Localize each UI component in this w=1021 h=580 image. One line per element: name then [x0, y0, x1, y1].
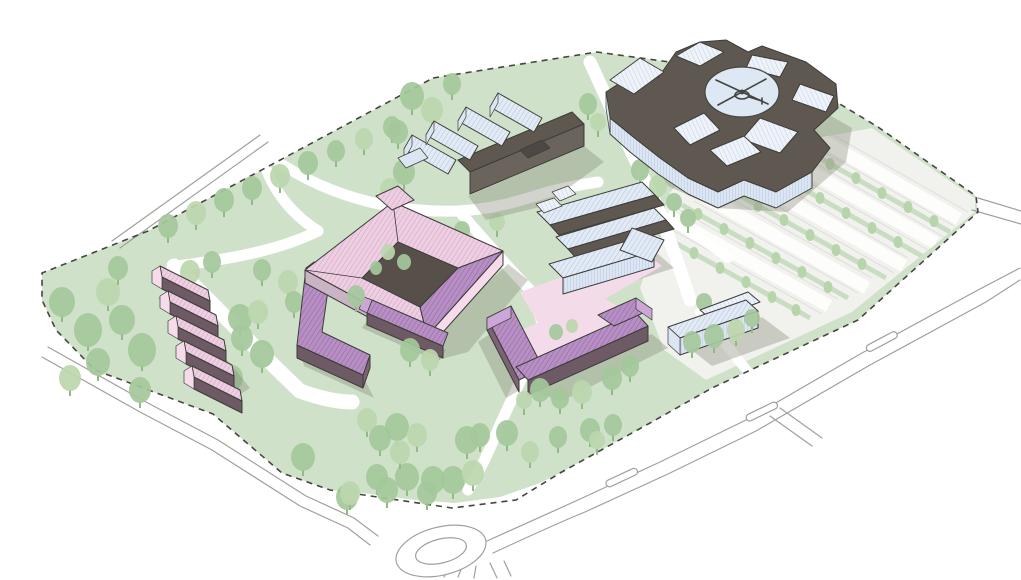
tree: [214, 188, 234, 212]
tree: [109, 305, 135, 335]
tree: [248, 300, 268, 324]
parking-tree: [742, 276, 751, 288]
parking-tree: [816, 192, 825, 204]
parking-tree: [806, 229, 815, 241]
masterplan-illustration: Campus site masterplan — axonometric aer…: [0, 0, 1021, 580]
tree: [291, 443, 315, 471]
tree: [347, 285, 365, 307]
tree: [516, 391, 532, 409]
tree: [680, 209, 696, 227]
tree: [549, 426, 567, 448]
parking-tree: [780, 214, 789, 226]
tree: [49, 287, 75, 317]
tree: [74, 313, 102, 347]
parking-tree: [720, 223, 729, 235]
tree: [443, 73, 461, 95]
tree: [421, 349, 439, 371]
tree: [370, 261, 382, 275]
tree: [355, 128, 373, 150]
tree: [727, 319, 745, 341]
tree: [417, 481, 437, 505]
tree: [521, 441, 539, 463]
tree: [602, 366, 622, 390]
tree: [421, 97, 443, 123]
tree: [128, 333, 156, 367]
parking-tree: [824, 281, 833, 293]
site-plan-canvas: Campus site masterplan — axonometric aer…: [0, 0, 1021, 580]
tree: [744, 309, 760, 327]
tree: [108, 256, 128, 280]
tree: [590, 113, 606, 131]
road-east-stub: [978, 198, 1021, 211]
tree: [470, 423, 490, 447]
parking-tree: [792, 304, 801, 316]
tree: [621, 355, 639, 377]
tree: [327, 140, 345, 162]
helipad: [705, 67, 779, 117]
tree: [390, 440, 410, 464]
parking-tree: [746, 237, 755, 249]
parking-tree: [798, 266, 807, 278]
tree: [400, 338, 420, 362]
tree: [566, 319, 578, 333]
parking-tree: [690, 247, 699, 259]
tree: [340, 481, 360, 505]
tree: [388, 120, 408, 144]
parking-tree: [878, 187, 887, 199]
tree: [397, 254, 411, 270]
tree: [231, 325, 253, 351]
tree: [530, 378, 550, 402]
tree: [551, 387, 569, 409]
tree: [96, 278, 120, 306]
roundabout: [391, 517, 492, 580]
tree: [683, 331, 701, 353]
tree: [59, 365, 81, 391]
tree: [441, 466, 465, 494]
parking-tree: [930, 215, 939, 227]
parking-tree: [832, 244, 841, 256]
tree: [242, 176, 262, 200]
parking-tree: [772, 252, 781, 264]
tree: [704, 324, 724, 348]
parking-tree: [858, 258, 867, 270]
parking-tree: [768, 291, 777, 303]
tree: [579, 93, 597, 115]
road-junction-spur: [770, 416, 812, 446]
tree: [604, 414, 622, 436]
tree: [666, 193, 682, 211]
parking-tree: [894, 236, 903, 248]
tree: [589, 431, 605, 449]
parking-tree: [904, 201, 913, 213]
tree: [407, 423, 427, 447]
parking-tree: [868, 222, 877, 234]
tree: [385, 413, 409, 441]
tree: [395, 463, 419, 491]
tree: [462, 460, 484, 486]
tree: [549, 324, 563, 340]
tree: [572, 380, 592, 404]
parking-tree: [716, 262, 725, 274]
tree: [250, 340, 274, 368]
tree: [496, 420, 518, 446]
tree: [376, 477, 398, 503]
tree: [203, 251, 221, 273]
tree: [400, 82, 424, 110]
tree: [129, 377, 151, 403]
tree: [278, 270, 298, 294]
tree: [298, 151, 318, 175]
tree: [253, 259, 271, 281]
tree: [158, 214, 178, 238]
parking-tree: [842, 207, 851, 219]
tree: [270, 164, 290, 188]
tree: [381, 244, 395, 260]
tree: [86, 348, 110, 376]
parking-tree: [852, 172, 861, 184]
tree: [285, 291, 303, 313]
tree: [186, 201, 206, 225]
